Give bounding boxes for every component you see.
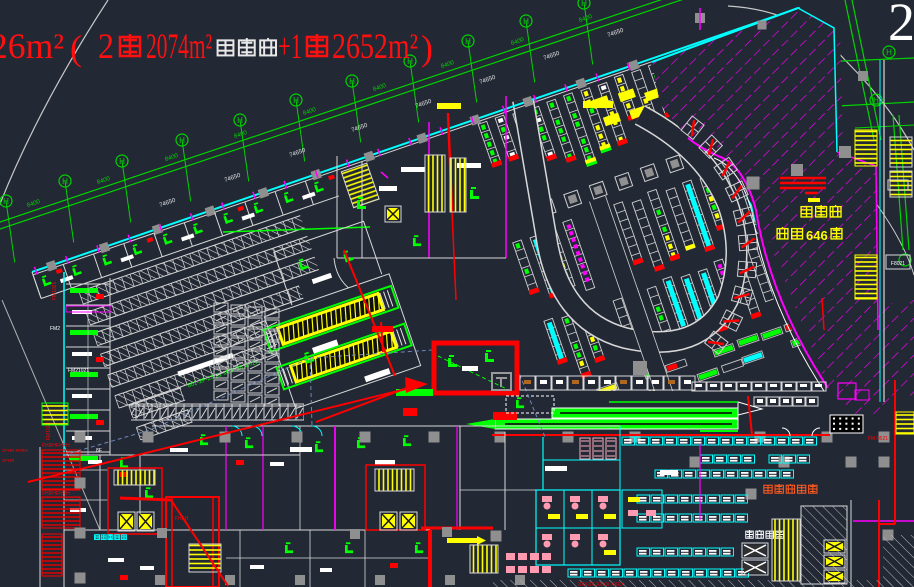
- svg-text:H: H: [179, 136, 185, 145]
- svg-text:2: 2: [98, 26, 114, 66]
- svg-text:2652m²: 2652m²: [332, 26, 418, 66]
- svg-text:+1: +1: [278, 26, 302, 66]
- svg-text:): ): [421, 28, 433, 68]
- svg-text:2: 2: [888, 0, 914, 52]
- svg-text:H: H: [349, 77, 355, 86]
- svg-text:2074m²: 2074m²: [146, 26, 212, 66]
- svg-text:FM1021: FM1021: [52, 281, 58, 300]
- svg-text:H: H: [465, 37, 471, 46]
- svg-text:(: (: [70, 28, 82, 68]
- svg-text:H: H: [3, 197, 9, 206]
- svg-text:H: H: [873, 96, 879, 105]
- svg-text:26m²: 26m²: [0, 26, 64, 66]
- svg-text:H: H: [62, 177, 68, 186]
- svg-text:646: 646: [806, 228, 828, 243]
- svg-text:FM-0521: FM-0521: [868, 436, 888, 442]
- svg-text:FHRHFHRH: FHRHFHRH: [42, 443, 70, 449]
- svg-text:H: H: [581, 0, 587, 8]
- svg-text:XFHR FHRH: XFHR FHRH: [2, 448, 28, 453]
- svg-text:H: H: [293, 96, 299, 105]
- svg-text:H: H: [237, 116, 243, 125]
- svg-text:FM21021: FM21021: [68, 368, 89, 374]
- svg-text:XXXXX XXXX XXXX: XXXXX XXXX XXXX: [578, 582, 625, 587]
- svg-text:XFHR: XFHR: [2, 458, 15, 463]
- svg-text:FHRHFHRH: FHRHFHRH: [42, 491, 70, 497]
- svg-text:H: H: [119, 157, 125, 166]
- svg-text:H: H: [523, 17, 529, 26]
- svg-text:8F: 8F: [96, 448, 102, 454]
- svg-text:FM2: FM2: [50, 326, 60, 332]
- svg-text:F8021: F8021: [891, 261, 905, 267]
